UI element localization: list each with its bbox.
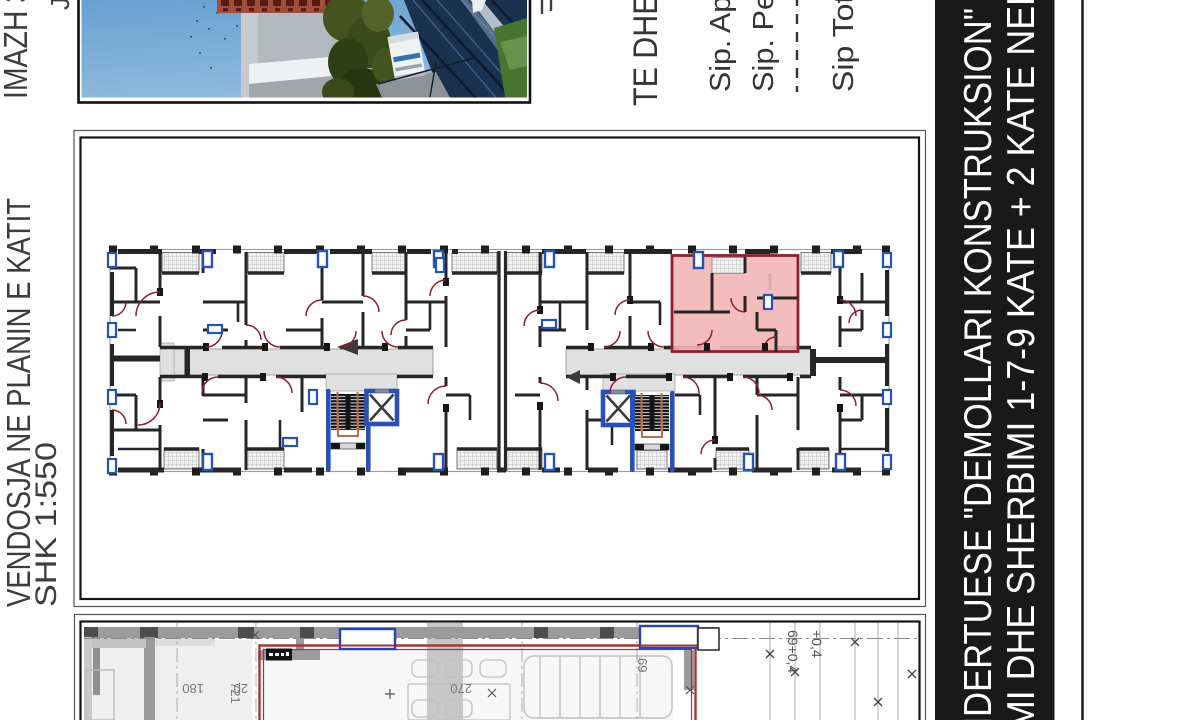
- svg-text:IMI DHE SHERBIMI 1-7-9 KATE +: IMI DHE SHERBIMI 1-7-9 KATE + 2 KATE NEN: [1000, 0, 1043, 720]
- svg-text:180: 180: [182, 681, 204, 696]
- svg-text:J: J: [45, 0, 75, 10]
- svg-text:270: 270: [450, 681, 472, 696]
- svg-text:+0,4: +0,4: [809, 630, 825, 658]
- svg-text:69: 69: [635, 658, 650, 672]
- svg-text:TE DHENAT: TE DHENAT: [627, 0, 665, 106]
- svg-text:IMAZH 3: IMAZH 3: [0, 0, 34, 99]
- svg-text:Sip. Perb.: Sip. Perb.: [748, 0, 780, 92]
- svg-text:Sip Totale: Sip Totale: [828, 0, 860, 92]
- svg-text:721: 721: [228, 682, 243, 704]
- svg-text:Sip. Apart.: Sip. Apart.: [705, 0, 737, 92]
- svg-text:69+0,4: 69+0,4: [785, 630, 801, 673]
- svg-text:NDERTUESE "DEMOLLARI KONSTRUKS: NDERTUESE "DEMOLLARI KONSTRUKSION": [957, 8, 1000, 720]
- svg-text:SHK 1:550: SHK 1:550: [30, 442, 63, 607]
